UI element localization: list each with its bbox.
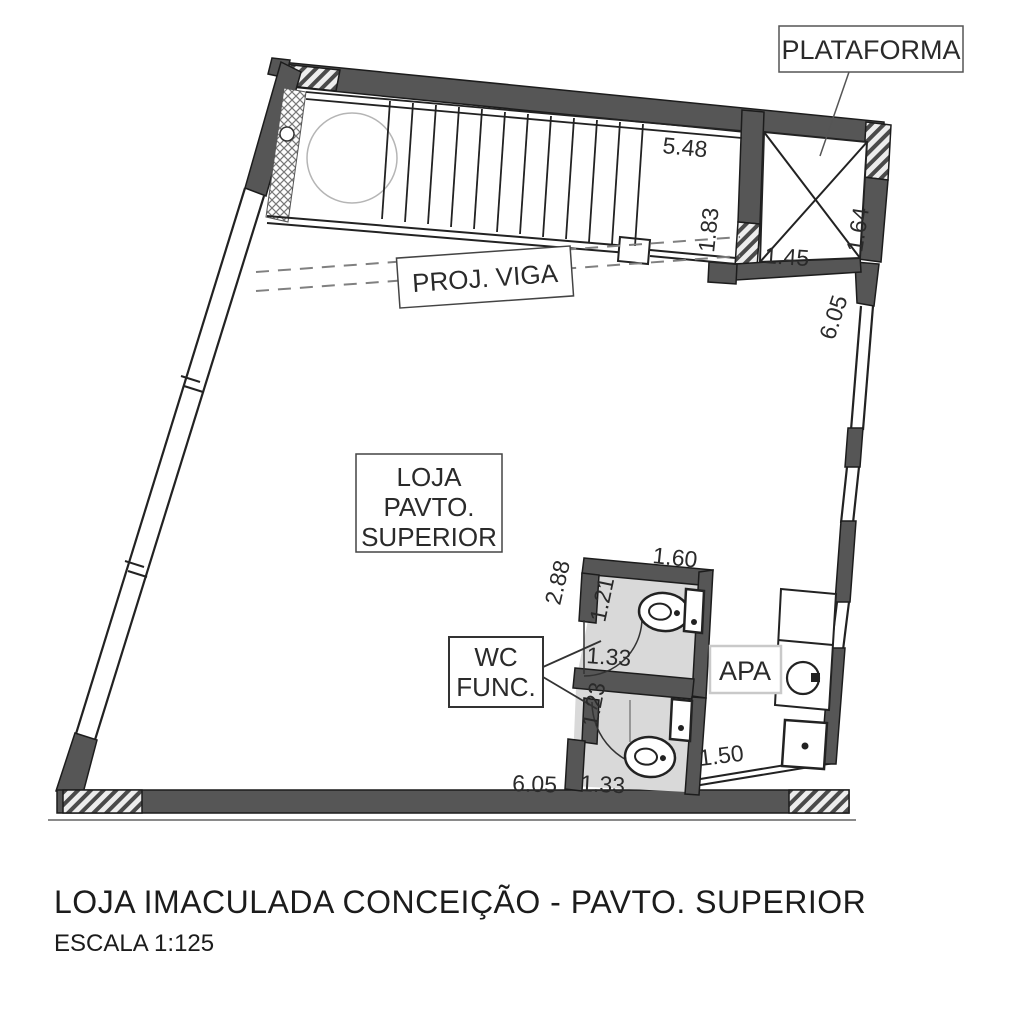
dim-wc1-width: 1.33 [586, 642, 632, 671]
dim-wc2-width: 1.33 [580, 770, 626, 798]
hatched-wall-segment [789, 790, 849, 813]
loja-label-line3: SUPERIOR [361, 522, 497, 552]
hatched-wall-segment [735, 222, 760, 268]
apa-label: APA [719, 656, 771, 686]
wc-rooms [565, 558, 713, 795]
stair-treads [382, 101, 643, 246]
dim-apa-width: 1.50 [697, 740, 745, 771]
hatched-wall-segment [63, 790, 142, 813]
drawing-scale: ESCALA 1:125 [54, 930, 866, 958]
dim-wc-top: 1.60 [651, 542, 698, 573]
column-marker [280, 127, 294, 141]
proj-viga-label-box: PROJ. VIGA [396, 246, 573, 308]
dim-stair-width: 5.48 [662, 132, 709, 162]
dim-wc-left-height: 2.88 [540, 558, 575, 607]
plataforma-label: PLATAFORMA [781, 35, 960, 65]
dim-platform-width: 1.45 [764, 242, 810, 271]
title-block: LOJA IMACULADA CONCEIÇÃO - PAVTO. SUPERI… [54, 884, 866, 958]
dim-stair-depth: 1.83 [693, 206, 724, 253]
floor-plan-drawing: PLATAFORMA PROJ. VIGA LOJA PAVTO. SUPERI… [0, 0, 1028, 870]
floor-plan-sheet: PLATAFORMA PROJ. VIGA LOJA PAVTO. SUPERI… [0, 0, 1028, 1024]
cistern-icon [684, 589, 704, 633]
stair-step [618, 237, 650, 264]
wc-func-label-line1: WC [474, 642, 517, 672]
dim-right-wall: 6.05 [814, 292, 853, 343]
loja-label-line2: PAVTO. [383, 492, 474, 522]
apa-counter [775, 589, 836, 769]
cistern-icon [670, 699, 692, 741]
loja-label-line1: LOJA [396, 462, 462, 492]
drawing-title: LOJA IMACULADA CONCEIÇÃO - PAVTO. SUPERI… [54, 884, 866, 921]
wc-func-label-line2: FUNC. [456, 672, 535, 702]
dim-bottom: 6.05 [512, 770, 558, 798]
